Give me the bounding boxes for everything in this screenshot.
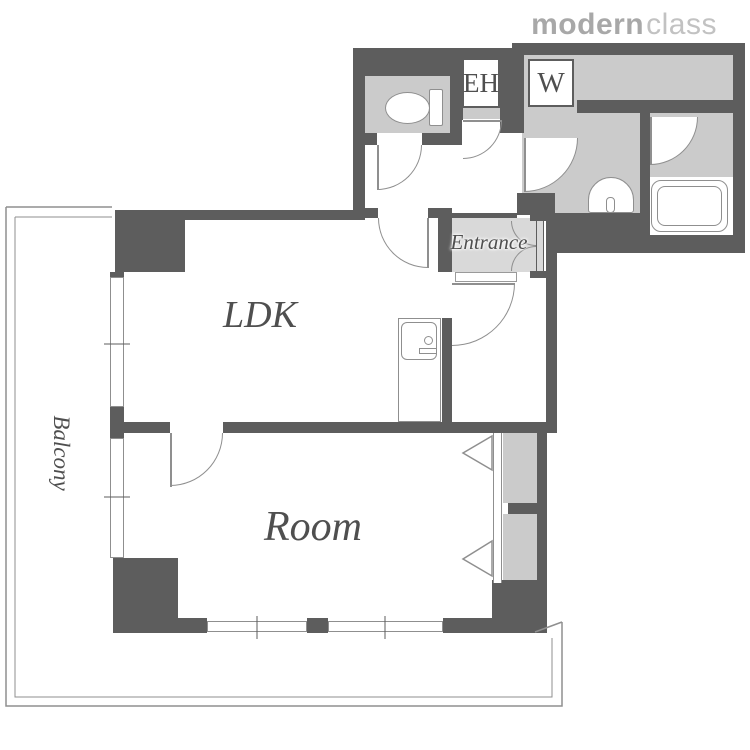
- eh-lower-strip: [462, 108, 500, 119]
- wall-segment: [307, 618, 328, 633]
- balcony-label: Balcony: [48, 393, 74, 513]
- wall-segment: [180, 210, 365, 220]
- door-leaf: [452, 283, 515, 285]
- doorway-gap: [170, 421, 223, 433]
- wall-segment: [512, 43, 745, 55]
- wall-segment: [450, 48, 462, 133]
- closet-track: [493, 433, 502, 583]
- door-leaf: [650, 117, 652, 165]
- door-swing: [463, 120, 502, 159]
- wall-segment: [110, 407, 124, 438]
- elevator-hall-label: EH: [463, 68, 499, 99]
- kitchen-bar-icon: [419, 348, 437, 354]
- door-leaf: [377, 145, 379, 190]
- wall-segment: [530, 214, 547, 221]
- entrance-step: [455, 272, 517, 282]
- wall-segment: [553, 213, 640, 235]
- wall-segment: [577, 100, 745, 113]
- closet-upper-floor: [503, 433, 537, 503]
- door-leaf: [524, 138, 526, 192]
- window-symbol: [328, 621, 443, 632]
- washing-machine-shaft: W: [528, 59, 574, 107]
- door-leaf: [463, 120, 502, 122]
- entrance-label: Entrance: [430, 230, 548, 255]
- upper-right-floor: [577, 55, 733, 100]
- wall-segment: [178, 618, 207, 633]
- door-swing: [170, 433, 223, 486]
- wall-segment: [530, 271, 547, 278]
- wall-segment: [422, 133, 462, 145]
- wall-segment: [450, 106, 463, 120]
- wall-segment: [448, 213, 517, 218]
- door-swing: [377, 145, 422, 190]
- toilet-icon: [429, 89, 443, 126]
- wall-segment: [115, 210, 185, 272]
- door-swing: [452, 283, 515, 346]
- door-swing: [378, 218, 428, 268]
- wall-segment: [517, 193, 555, 215]
- wall-segment: [508, 503, 537, 514]
- brand-logo-light: class: [646, 8, 717, 41]
- wall-segment: [442, 318, 452, 422]
- washing-machine-label: W: [537, 67, 564, 100]
- wall-segment: [122, 422, 170, 433]
- closet-lower-floor: [503, 514, 537, 583]
- wall-segment: [443, 618, 492, 633]
- wall-segment: [353, 133, 377, 145]
- brand-logo-bold: modern: [531, 8, 644, 41]
- door-leaf: [427, 218, 429, 268]
- elevator-hall-shaft: EH: [462, 58, 500, 108]
- door-leaf: [170, 433, 172, 487]
- wall-segment: [553, 235, 745, 253]
- toilet-bowl-icon: [385, 92, 430, 124]
- wall-segment: [223, 422, 547, 433]
- wall-segment: [500, 48, 524, 133]
- wall-segment: [492, 580, 547, 633]
- bathtub-inner-icon: [657, 186, 722, 226]
- wall-segment: [353, 48, 462, 76]
- wall-segment: [113, 558, 178, 633]
- wall-segment: [537, 433, 547, 583]
- floorplan-canvas: modernclass EH W: [0, 0, 750, 750]
- window-symbol: [110, 277, 124, 407]
- wall-segment: [733, 43, 745, 253]
- window-symbol: [110, 438, 124, 558]
- kitchen-burner-icon: [424, 336, 433, 345]
- wall-segment: [640, 113, 650, 235]
- wall-segment: [365, 208, 378, 218]
- ldk-label: LDK: [190, 293, 330, 337]
- window-symbol: [207, 621, 307, 632]
- washbasin-handle-icon: [606, 197, 615, 213]
- brand-logo: modernclass: [531, 8, 717, 42]
- doorway-gap: [377, 133, 422, 145]
- wall-segment: [462, 48, 500, 58]
- room-label: Room: [238, 503, 388, 551]
